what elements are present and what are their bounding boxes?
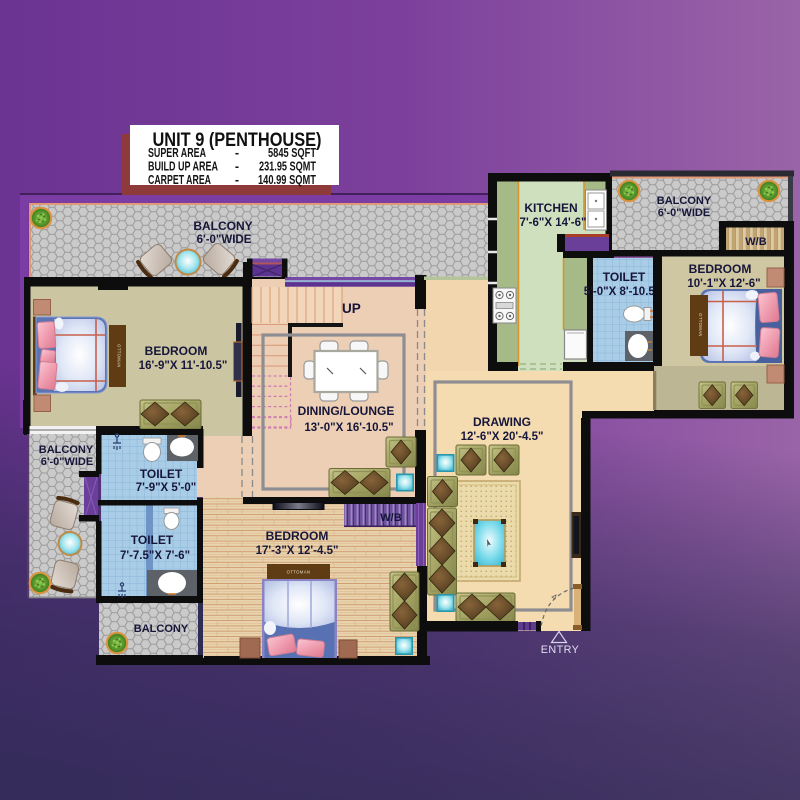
svg-text:SUPER AREA: SUPER AREA bbox=[148, 146, 206, 160]
svg-text:140.99 SQMT: 140.99 SQMT bbox=[258, 173, 316, 187]
svg-text:OTTOMAN: OTTOMAN bbox=[287, 570, 311, 575]
svg-text:-: - bbox=[235, 160, 239, 174]
svg-text:ENTRY: ENTRY bbox=[541, 644, 579, 656]
svg-text:-: - bbox=[235, 173, 239, 187]
svg-text:CARPET AREA: CARPET AREA bbox=[148, 173, 211, 187]
svg-text:DINING/LOUNGE: DINING/LOUNGE bbox=[298, 404, 395, 418]
svg-text:5845 SQFT: 5845 SQFT bbox=[268, 146, 316, 160]
svg-text:OTTOMAN: OTTOMAN bbox=[698, 313, 703, 337]
svg-text:BEDROOM: BEDROOM bbox=[689, 262, 752, 276]
svg-text:7'-6"X 14'-6": 7'-6"X 14'-6" bbox=[520, 217, 587, 229]
svg-text:7'-7.5"X 7'-6": 7'-7.5"X 7'-6" bbox=[120, 550, 190, 562]
svg-text:231.95 SQMT: 231.95 SQMT bbox=[259, 160, 316, 174]
svg-text:12'-6"X 20'-4.5": 12'-6"X 20'-4.5" bbox=[461, 431, 544, 443]
svg-text:6'-0"WIDE: 6'-0"WIDE bbox=[41, 456, 93, 468]
svg-text:DRAWING: DRAWING bbox=[473, 415, 531, 429]
svg-text:TOILET: TOILET bbox=[140, 467, 183, 481]
svg-text:BALCONY: BALCONY bbox=[39, 444, 94, 456]
svg-text:OTTOMAN: OTTOMAN bbox=[117, 344, 122, 368]
svg-text:7'-9"X 5'-0": 7'-9"X 5'-0" bbox=[136, 482, 196, 494]
svg-text:-: - bbox=[235, 146, 239, 160]
svg-text:KITCHEN: KITCHEN bbox=[524, 201, 577, 215]
svg-text:BALCONY: BALCONY bbox=[193, 219, 252, 233]
svg-text:UP: UP bbox=[342, 301, 361, 316]
svg-text:5'-0"X 8'-10.5": 5'-0"X 8'-10.5" bbox=[584, 286, 660, 298]
svg-text:17'-3"X 12'-4.5": 17'-3"X 12'-4.5" bbox=[256, 545, 339, 557]
svg-text:TOILET: TOILET bbox=[603, 270, 646, 284]
svg-text:16'-9"X 11'-10.5": 16'-9"X 11'-10.5" bbox=[139, 360, 228, 372]
svg-text:10'-1"X 12'-6": 10'-1"X 12'-6" bbox=[687, 278, 760, 290]
svg-text:TOILET: TOILET bbox=[131, 533, 174, 547]
svg-text:W/B: W/B bbox=[380, 512, 401, 524]
svg-text:BEDROOM: BEDROOM bbox=[266, 529, 329, 543]
svg-text:W/B: W/B bbox=[745, 236, 766, 248]
svg-text:BALCONY: BALCONY bbox=[134, 623, 189, 635]
svg-text:6'-0"WIDE: 6'-0"WIDE bbox=[658, 207, 710, 219]
svg-text:BUILD UP AREA: BUILD UP AREA bbox=[148, 160, 218, 174]
svg-text:13'-0"X 16'-10.5": 13'-0"X 16'-10.5" bbox=[304, 422, 393, 434]
svg-text:BEDROOM: BEDROOM bbox=[145, 344, 208, 358]
svg-text:BALCONY: BALCONY bbox=[657, 195, 712, 207]
svg-text:6'-0"WIDE: 6'-0"WIDE bbox=[197, 234, 252, 246]
